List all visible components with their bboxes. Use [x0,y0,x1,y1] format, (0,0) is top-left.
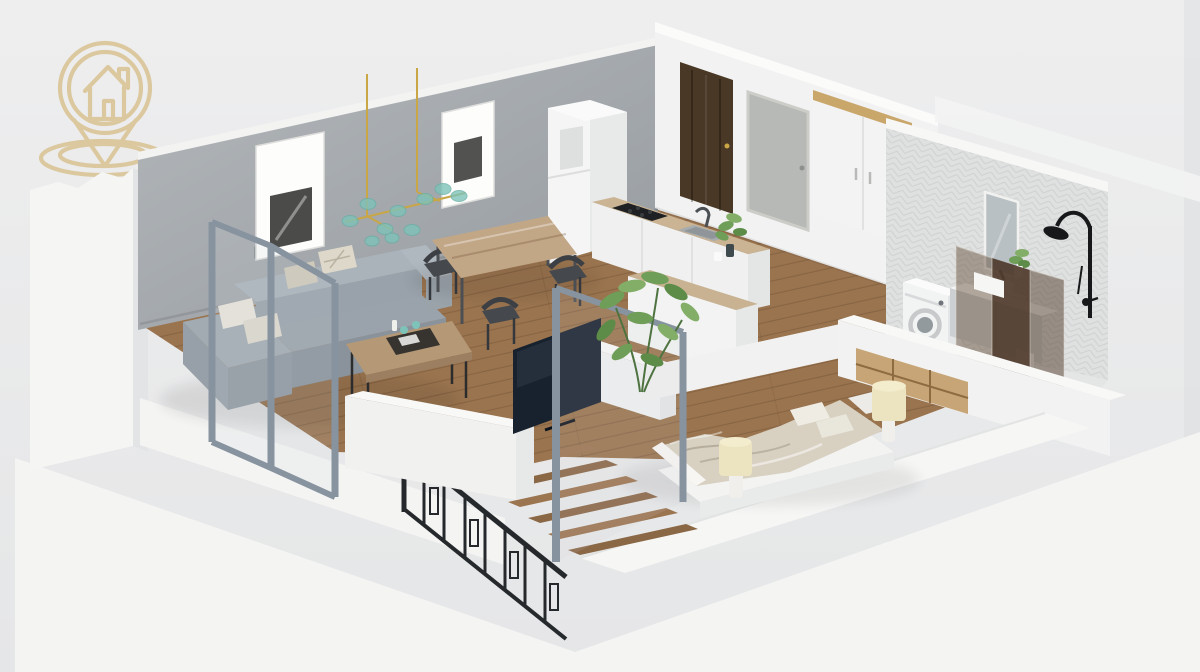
gray-door-handle [800,166,805,171]
left-wall-block [30,168,148,470]
glass-pane [212,222,271,468]
fridge-decal [560,126,583,170]
teal-cup-1 [400,326,408,334]
entry-door [680,62,733,214]
lamp-base [882,418,895,442]
kitchen-cabinets-end [748,249,770,310]
picture-art [454,136,482,183]
teal-cup-2 [412,321,420,329]
door-knob [725,144,730,149]
plant-vase [726,244,734,257]
candle [392,320,397,331]
logo-house-icon [85,67,128,119]
framed-picture-left [256,132,324,260]
glass-pane [271,246,335,497]
counter-jar [714,252,722,261]
washer-knob [939,301,944,306]
interior-door-gray [748,92,808,230]
gray-door-panel [748,92,808,230]
left-wall-front [30,168,133,470]
floorplan-render [0,0,1200,672]
